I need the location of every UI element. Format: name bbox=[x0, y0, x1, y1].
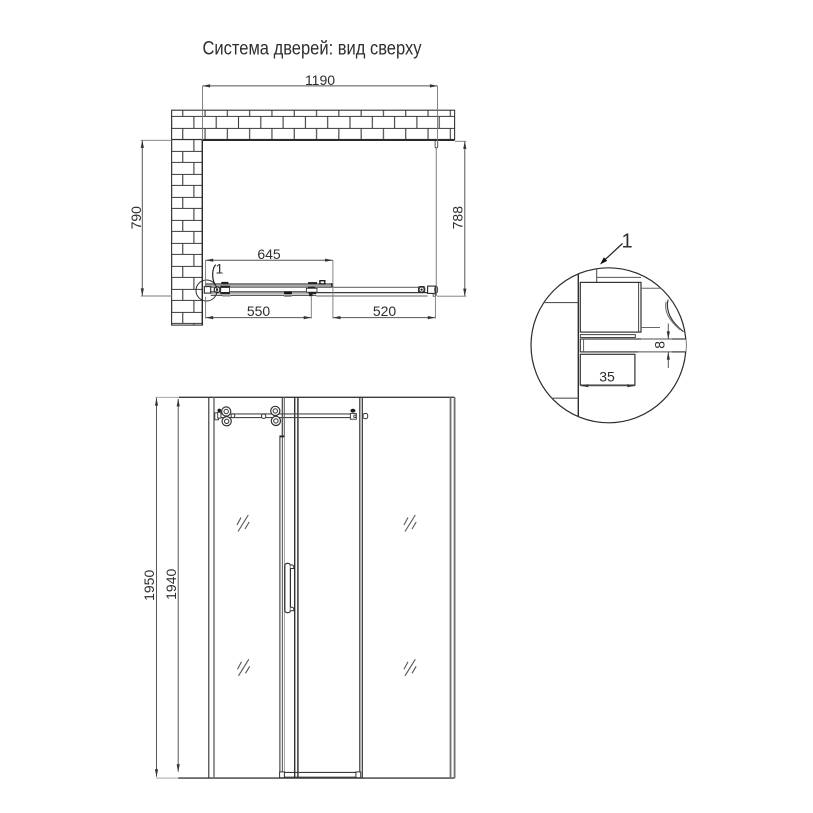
svg-text:35: 35 bbox=[599, 369, 615, 385]
svg-text:Система дверей: вид сверху: Система дверей: вид сверху bbox=[203, 38, 422, 59]
svg-text:1950: 1950 bbox=[141, 570, 157, 601]
svg-text:1: 1 bbox=[622, 230, 633, 252]
svg-text:8: 8 bbox=[652, 341, 668, 349]
svg-text:550: 550 bbox=[247, 303, 271, 319]
svg-text:1190: 1190 bbox=[305, 72, 335, 88]
svg-text:1940: 1940 bbox=[163, 569, 179, 600]
svg-text:788: 788 bbox=[449, 206, 465, 230]
svg-text:790: 790 bbox=[128, 206, 144, 230]
svg-text:645: 645 bbox=[257, 246, 281, 262]
svg-text:520: 520 bbox=[373, 303, 397, 319]
svg-text:1: 1 bbox=[216, 261, 224, 277]
